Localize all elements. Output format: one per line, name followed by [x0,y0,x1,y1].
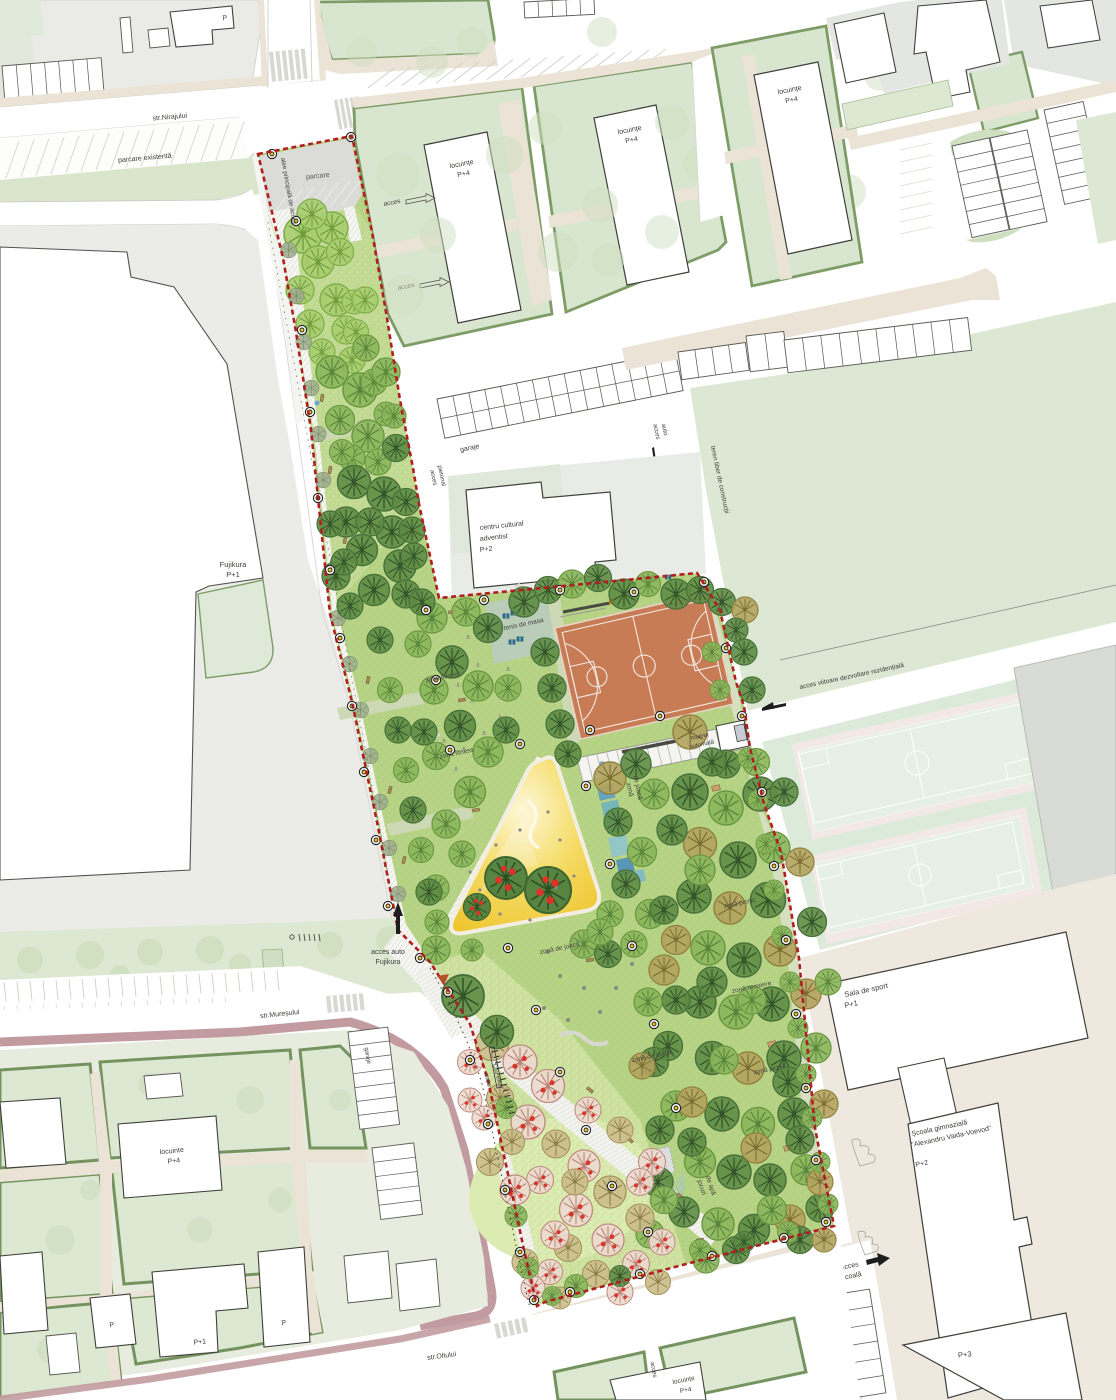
svg-text:P: P [222,15,228,22]
svg-text:Fujikura: Fujikura [376,959,401,966]
svg-text:P+2: P+2 [479,546,492,554]
svg-text:acces auto: acces auto [371,949,405,956]
svg-text:P+1: P+1 [226,570,240,579]
svg-text:Fujikura: Fujikura [220,560,248,569]
svg-text:P+3: P+3 [958,1349,972,1359]
svg-text:P+4: P+4 [167,1157,180,1165]
svg-text:P+1: P+1 [193,1338,206,1346]
